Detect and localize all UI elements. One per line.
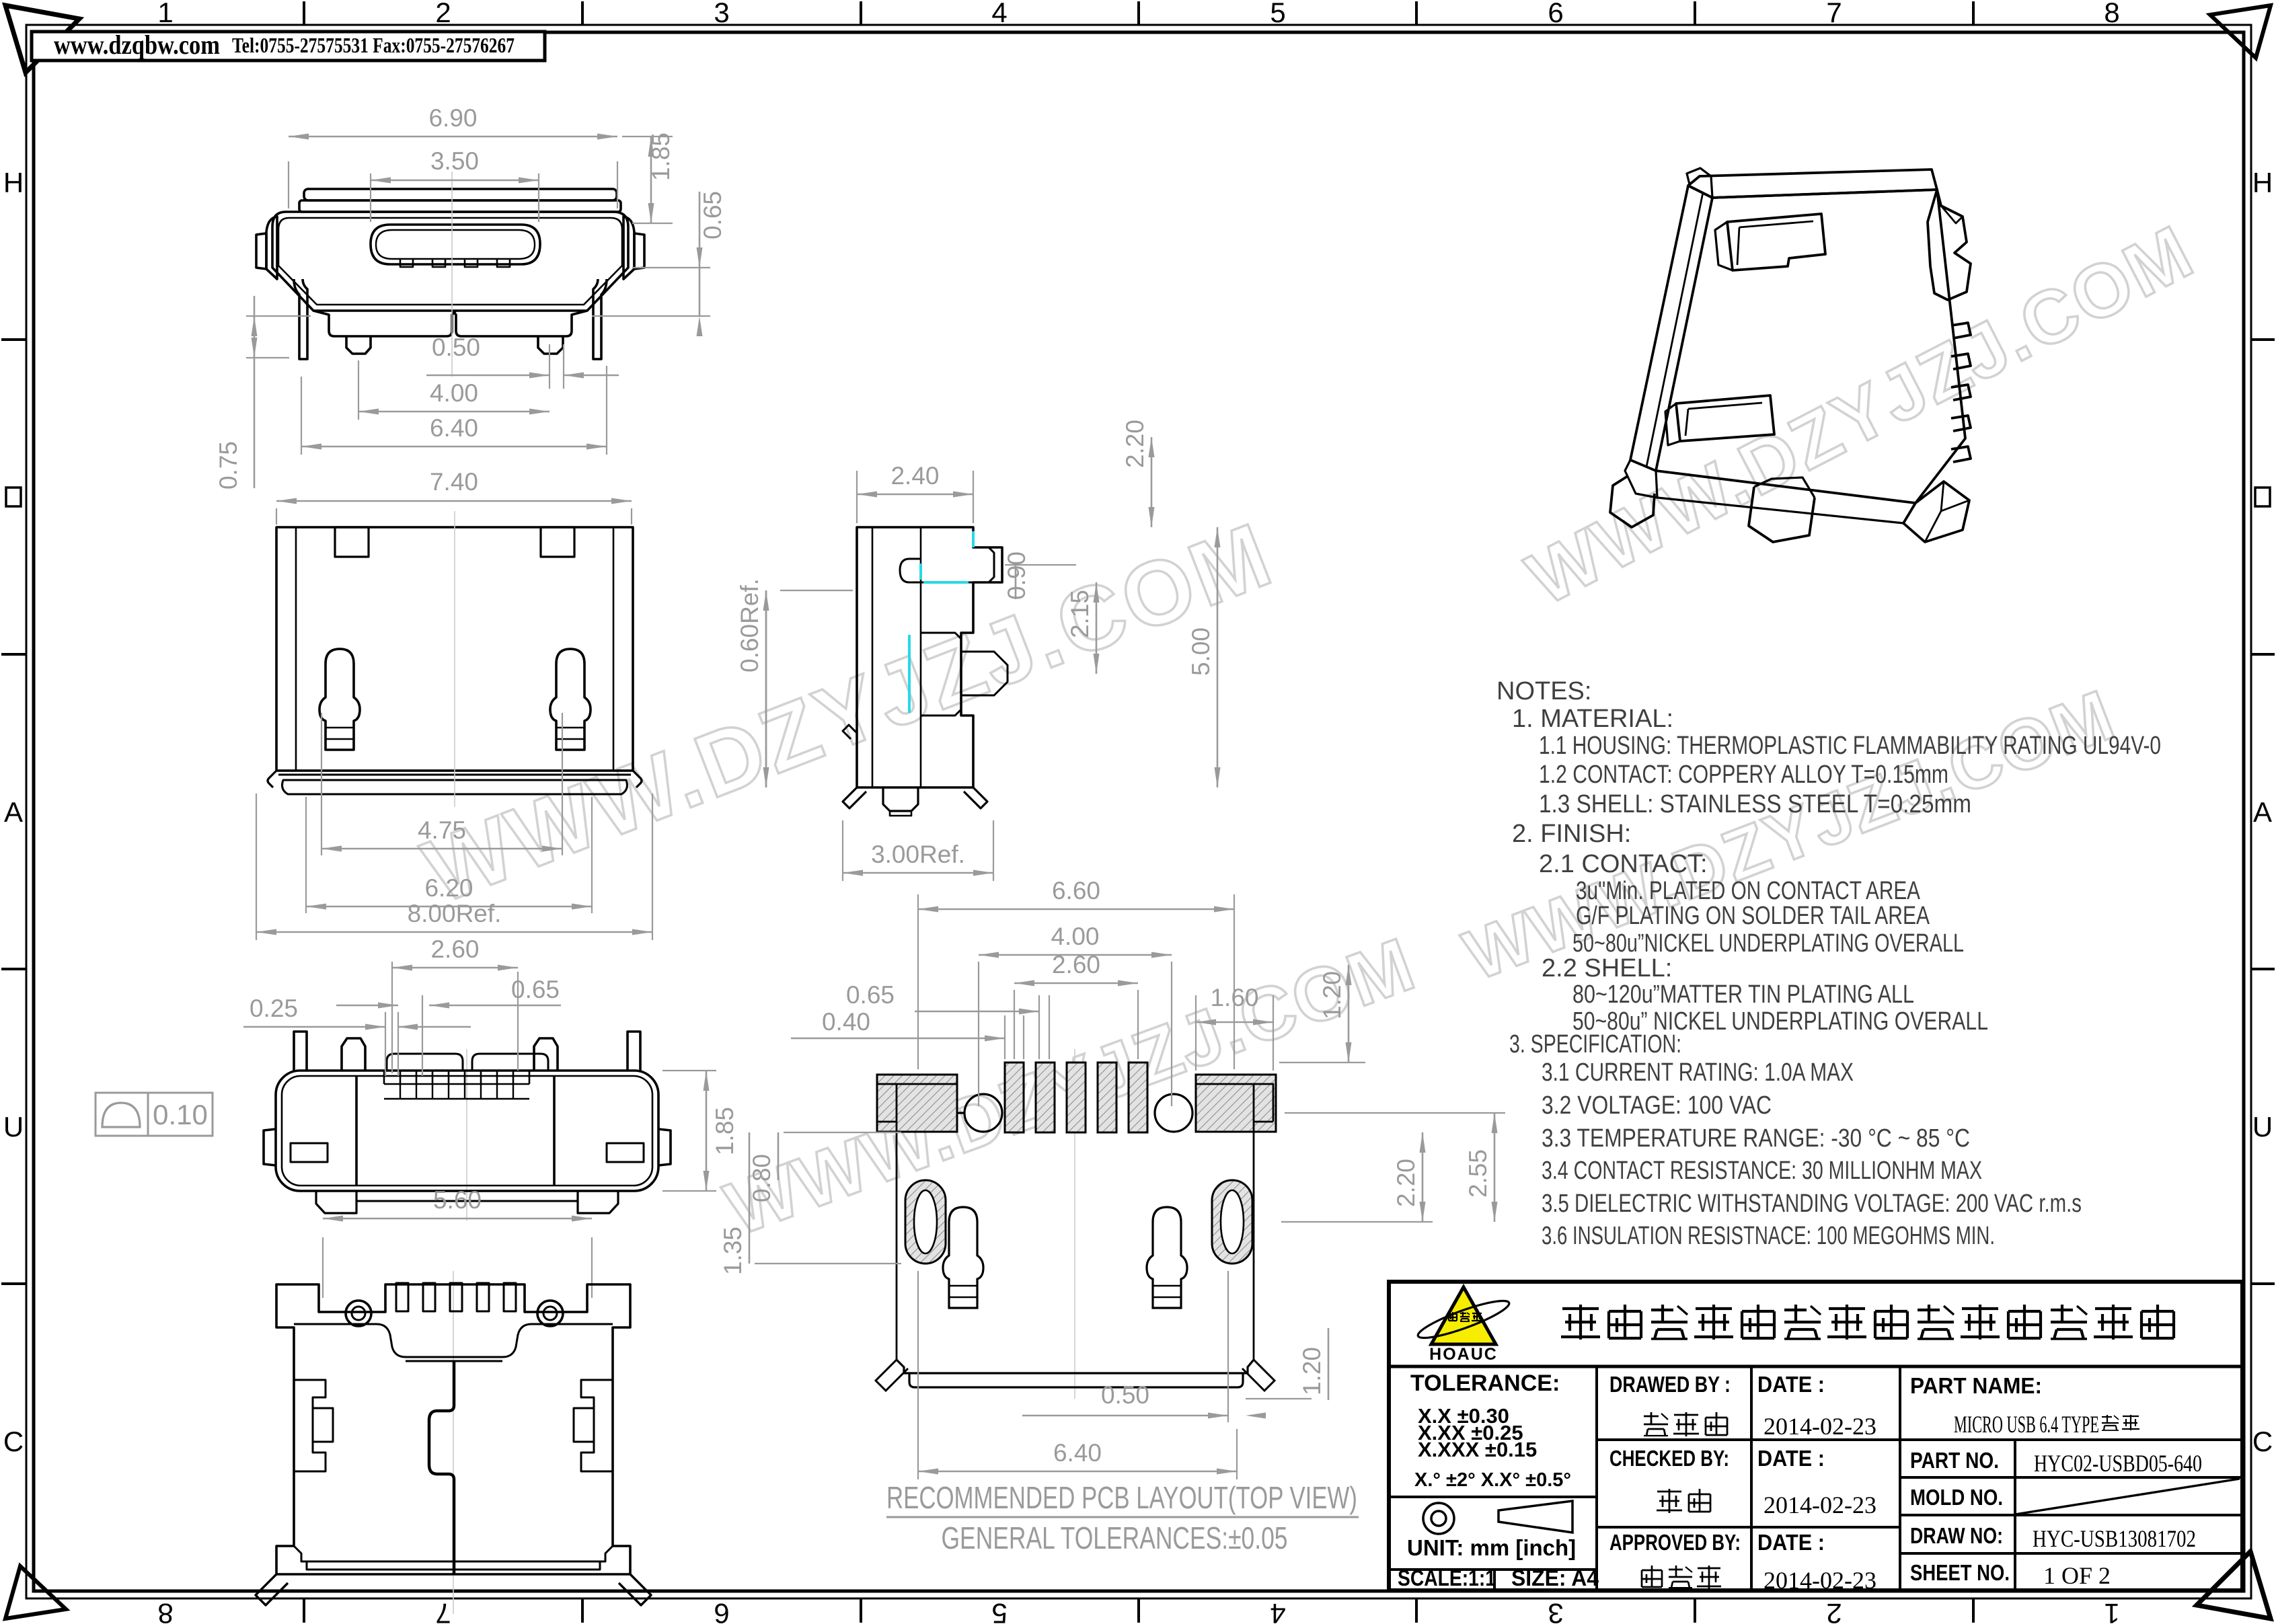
svg-text:1: 1 [2104,1598,2119,1624]
svg-text:SCALE:1:1: SCALE:1:1 [1398,1565,1496,1590]
svg-text:DATE :: DATE : [1757,1446,1825,1471]
svg-text:3: 3 [714,0,729,28]
svg-text:SIZE: A4: SIZE: A4 [1511,1565,1599,1590]
svg-text:4: 4 [1270,1598,1285,1624]
svg-text:3.00Ref.: 3.00Ref. [871,841,965,868]
svg-text:3.6 INSULATION RESISTNACE:: 3.6 INSULATION RESISTNACE: 100 MEGOHMS M… [1542,1222,1995,1250]
svg-text:6: 6 [714,1598,729,1624]
svg-text:2. FINISH:: 2. FINISH: [1512,820,1631,848]
svg-text:H: H [2252,167,2273,198]
svg-text:HYC-USB13081702: HYC-USB13081702 [2033,1525,2196,1552]
svg-text:0.50: 0.50 [1101,1381,1149,1409]
svg-text:6: 6 [1548,0,1563,28]
svg-text:5: 5 [991,1598,1007,1624]
svg-text:NOTES:: NOTES: [1496,677,1591,705]
svg-text:2.20: 2.20 [1121,420,1149,468]
svg-text:DATE :: DATE : [1757,1530,1825,1555]
svg-text:1.2 CONTACT: COPPERY ALLOY: 1.2 CONTACT: COPPERY ALLOY T=0.15mm [1539,761,1948,789]
svg-text:HYC02-USBD05-640: HYC02-USBD05-640 [2034,1450,2202,1477]
svg-text:U: U [3,1111,24,1143]
svg-text:3.50: 3.50 [430,147,479,175]
svg-text:1. MATERIAL:: 1. MATERIAL: [1512,705,1673,733]
svg-text:7: 7 [1826,0,1842,28]
svg-text:2014-02-23: 2014-02-23 [1763,1567,1876,1594]
svg-text:CHECKED BY:: CHECKED BY: [1609,1446,1729,1471]
svg-text:8: 8 [157,1598,173,1624]
svg-text:2.1 CONTACT:: 2.1 CONTACT: [1539,850,1708,878]
svg-text:HOAUC: HOAUC [1429,1345,1498,1364]
svg-text:1.60: 1.60 [1210,984,1258,1011]
svg-text:U: U [2252,1111,2273,1143]
svg-text:0.60Ref.: 0.60Ref. [736,578,763,672]
svg-text:2.60: 2.60 [1052,951,1100,978]
svg-text:2.40: 2.40 [890,462,939,490]
svg-text:2: 2 [435,0,451,28]
svg-text:80~120u”MATTER TIN PLATING: 80~120u”MATTER TIN PLATING ALL [1572,980,1914,1009]
svg-text:2: 2 [1826,1598,1842,1624]
svg-text:X.° ±2° X.X° ±0.5°: X.° ±2° X.X° ±0.5° [1414,1469,1571,1491]
svg-text:UNIT: mm [inch]: UNIT: mm [inch] [1407,1535,1576,1560]
svg-text:0.25: 0.25 [250,995,298,1022]
svg-text:4.00: 4.00 [1051,923,1099,950]
svg-text:3. SPECIFICATION:: 3. SPECIFICATION: [1509,1030,1681,1058]
svg-text:2.20: 2.20 [1392,1159,1420,1207]
svg-text:7: 7 [435,1598,451,1624]
svg-text:A: A [2253,796,2272,828]
svg-text:2.15: 2.15 [1066,590,1094,638]
svg-text:1: 1 [157,0,173,28]
svg-text:0.65: 0.65 [511,976,560,1003]
svg-text:DRAW NO:: DRAW NO: [1910,1523,2003,1548]
svg-text:0.80: 0.80 [748,1154,775,1202]
svg-text:3.3 TEMPERATURE RANGE: -30: 3.3 TEMPERATURE RANGE: -30 °C ~ 85 °C [1542,1124,1970,1153]
svg-text:DATE :: DATE : [1757,1372,1825,1397]
svg-text:TOLERANCE:: TOLERANCE: [1410,1370,1560,1396]
svg-text:8.00Ref.: 8.00Ref. [408,900,502,927]
svg-text:SHEET NO.: SHEET NO. [1910,1560,2010,1585]
svg-text:APPROVED BY:: APPROVED BY: [1609,1530,1741,1555]
svg-text:6.90: 6.90 [428,104,477,132]
svg-text:0.90: 0.90 [1003,551,1030,600]
svg-text:2.55: 2.55 [1464,1149,1492,1198]
svg-text:50~80u”NICKEL UNDERPLATING O: 50~80u”NICKEL UNDERPLATING OVERALL [1572,929,1964,958]
svg-text:G/F PLATING ON SOLDER TAIL: G/F PLATING ON SOLDER TAIL AREA [1576,902,1930,930]
svg-text:MOLD NO.: MOLD NO. [1910,1485,2003,1510]
svg-text:Tel:0755-27575531 Fax:0755-27: Tel:0755-27575531 Fax:0755-27576267 [232,33,515,57]
svg-text:4.75: 4.75 [418,816,466,844]
svg-text:5: 5 [1270,0,1285,28]
svg-text:www.dzqbw.com: www.dzqbw.com [54,30,220,60]
svg-text:1.85: 1.85 [647,132,675,181]
svg-text:C: C [3,1426,24,1457]
svg-text:2.2 SHELL:: 2.2 SHELL: [1542,954,1672,982]
svg-text:1.35: 1.35 [719,1227,747,1275]
svg-text:2014-02-23: 2014-02-23 [1763,1413,1876,1440]
svg-text:7.40: 7.40 [430,468,478,496]
svg-text:0.10: 0.10 [153,1099,208,1130]
svg-text:1.1 HOUSING: THERMOPLASTIC: 1.1 HOUSING: THERMOPLASTIC FLAMMABILITY … [1539,732,2161,760]
svg-text:PART NO.: PART NO. [1910,1448,1999,1473]
svg-text:4.00: 4.00 [430,379,478,407]
svg-text:1 OF 2: 1 OF 2 [2043,1562,2111,1589]
svg-text:2014-02-23: 2014-02-23 [1763,1492,1876,1518]
svg-text:6.40: 6.40 [1053,1439,1102,1467]
svg-text:3.5 DIELECTRIC WITHSTANDING: 3.5 DIELECTRIC WITHSTANDING VOLTAGE: 200… [1542,1190,2082,1218]
svg-text:A: A [4,796,23,828]
svg-text:0.65: 0.65 [699,191,726,239]
svg-text:MICRO USB 6.4 TYPE: MICRO USB 6.4 TYPE [1954,1411,2099,1438]
svg-text:X.XXX ±0.15: X.XXX ±0.15 [1418,1438,1537,1461]
svg-text:0.75: 0.75 [215,441,242,490]
svg-text:4: 4 [991,0,1007,28]
svg-text:0.65: 0.65 [846,981,895,1009]
svg-text:5.00: 5.00 [1187,627,1215,676]
svg-text:3u''Min. PLATED ON CONTACT: 3u''Min. PLATED ON CONTACT AREA [1576,877,1921,905]
svg-text:DRAWED BY :: DRAWED BY : [1609,1372,1731,1397]
svg-text:3.4 CONTACT RESISTANCE: 30: 3.4 CONTACT RESISTANCE: 30 MILLIONHM MAX [1542,1157,1982,1185]
svg-text:PART NAME:: PART NAME: [1910,1373,2042,1398]
svg-text:3: 3 [1548,1598,1563,1624]
svg-text:1.20: 1.20 [1318,971,1346,1019]
svg-text:5.60: 5.60 [433,1186,482,1214]
svg-text:6.60: 6.60 [1052,877,1100,904]
svg-text:1.3 SHELL: STAINLESS: 1.3 SHELL: STAINLESS STEEL T=0.25mm [1539,790,1971,818]
svg-text:3.2 VOLTAGE: 100 VAC: 3.2 VOLTAGE: 100 VAC [1542,1091,1772,1120]
svg-text:GENERAL TOLERANCES:±0.05: GENERAL TOLERANCES:±0.05 [942,1520,1288,1555]
svg-text:C: C [2252,1426,2273,1457]
svg-text:H: H [3,167,24,198]
svg-text:0.50: 0.50 [432,334,480,361]
svg-text:6.20: 6.20 [424,874,473,902]
svg-text:0.40: 0.40 [822,1008,870,1036]
svg-text:RECOMMENDED PCB LAYOUT(TOP: RECOMMENDED PCB LAYOUT(TOP VIEW) [886,1480,1357,1515]
svg-text:2.60: 2.60 [430,935,479,963]
svg-text:6.40: 6.40 [430,414,478,442]
svg-text:1.20: 1.20 [1298,1347,1326,1395]
svg-text:1.85: 1.85 [711,1107,738,1155]
svg-text:8: 8 [2104,0,2119,28]
svg-text:3.1 CURRENT RATING: 1.0A M: 3.1 CURRENT RATING: 1.0A MAX [1542,1058,1854,1087]
